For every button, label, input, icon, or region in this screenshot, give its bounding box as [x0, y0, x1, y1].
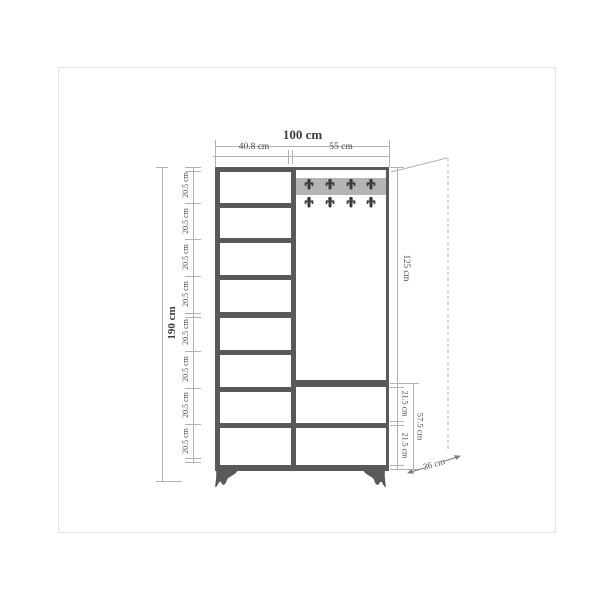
upper-right-height-label: 125 cm: [401, 246, 413, 290]
dimension-tick: [390, 469, 419, 470]
coat-hook-band: [296, 178, 386, 195]
drawer-section-top-divider: [291, 380, 389, 387]
shelf-divider: [220, 350, 291, 355]
total-width-label: 100 cm: [215, 127, 390, 141]
dimension-extension-line: [389, 140, 390, 167]
shelf-divider: [220, 312, 291, 318]
right-column-width-label: 55 cm: [293, 142, 389, 153]
shelf-divider: [220, 275, 291, 280]
drawer-height-label: 21.5 cm: [400, 426, 411, 466]
dimension-line-column-widths: [213, 156, 390, 157]
shelf-divider: [220, 423, 291, 428]
left-column-width-label: 40.8 cm: [215, 142, 293, 153]
drawer-height-label: 21.5 cm: [400, 384, 411, 424]
shelf-divider: [220, 203, 291, 208]
cabinet-bottom-edge: [215, 465, 389, 471]
drawer-section-height-label: 57.5 cm: [415, 405, 426, 449]
shelf-divider: [220, 387, 291, 392]
shelf-height-label: 20.5 cm: [180, 419, 192, 463]
drawer-divider: [291, 423, 389, 428]
dimension-line-shelves: [193, 167, 194, 462]
dimension-tick: [156, 167, 168, 168]
dimension-tick: [390, 167, 404, 168]
shelf-divider: [220, 238, 291, 243]
diagram-canvas: 100 cm 40.8 cm 55 cm 190 cm 20.5 cm 20.5…: [0, 0, 600, 600]
dimension-tick: [156, 481, 182, 482]
right-section-top-edge: [296, 167, 389, 170]
